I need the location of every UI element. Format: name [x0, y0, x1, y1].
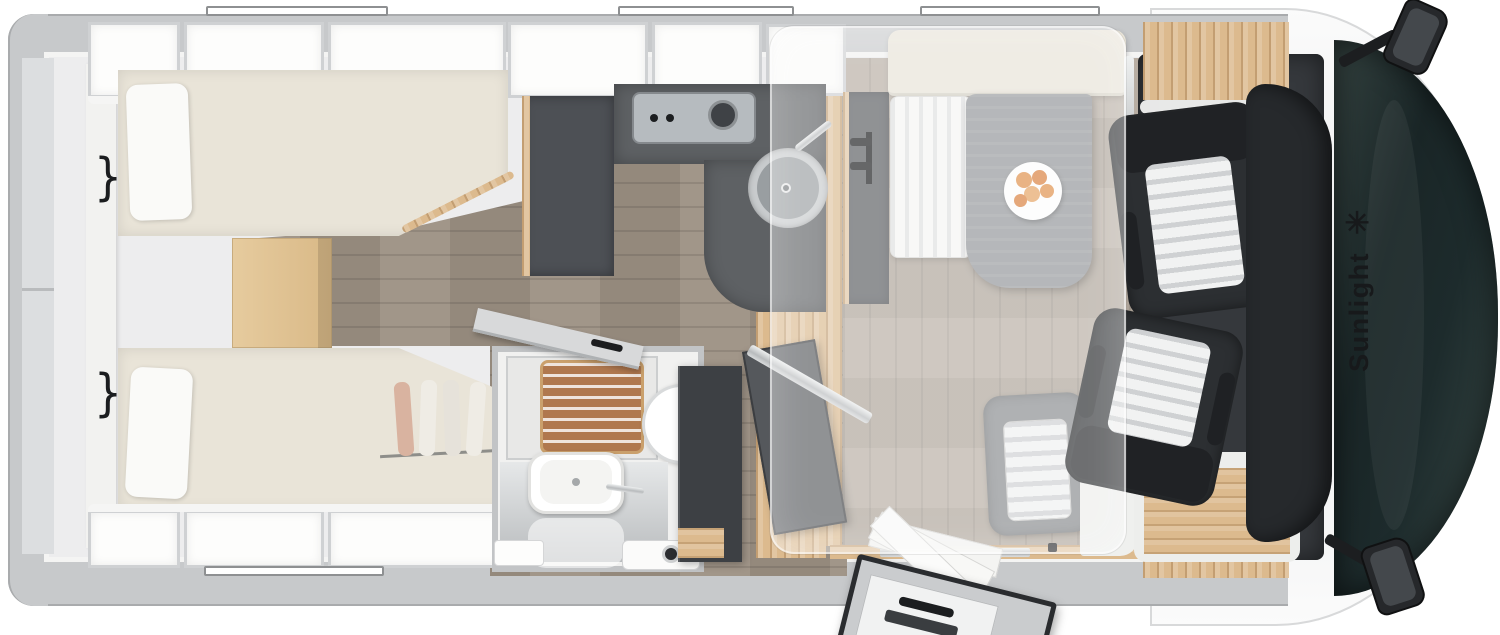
motorhome-floorplan: } }	[0, 0, 1500, 635]
reading-lamp-icon: }	[94, 153, 122, 204]
mirror-glass	[1368, 544, 1418, 608]
window-top-1	[206, 6, 388, 16]
mirror-head	[1358, 534, 1428, 618]
kitchen-tall-cabinet	[522, 96, 614, 276]
bedroom-step	[232, 238, 332, 348]
wardrobe-drawer	[678, 528, 724, 558]
pillow	[126, 83, 193, 221]
headboard-panel	[86, 64, 116, 548]
bedroom-step-edge	[318, 238, 332, 348]
hob-knob	[650, 114, 658, 122]
basin-drain	[572, 478, 580, 486]
pillow	[125, 366, 194, 499]
side-mirror-top	[1340, 0, 1450, 92]
brand-name-text: Sunlight	[1344, 252, 1374, 372]
seat-cushion	[1144, 155, 1245, 295]
hanger-garment	[443, 380, 462, 457]
window-top-3	[920, 6, 1100, 16]
window-top-2	[618, 6, 794, 16]
drop-down-bed-outline	[770, 26, 1126, 554]
overhead-locker	[88, 510, 180, 568]
reading-lamp-icon: }	[94, 369, 122, 420]
cabinet-wood-edge	[522, 96, 530, 276]
door-handle	[591, 338, 624, 352]
rear-shelf-divider	[22, 288, 54, 291]
hanger-garment	[419, 380, 438, 457]
brand-star-icon: ✳	[1342, 208, 1375, 235]
mirror-head	[1380, 0, 1452, 79]
window-bottom-1	[204, 566, 384, 576]
locker-shelf-lip	[88, 504, 506, 512]
brand-wordmark: Sunlight ✳	[1341, 135, 1385, 445]
mirror-glass	[1390, 6, 1441, 68]
overhead-locker	[184, 510, 324, 568]
hob-burner	[708, 100, 738, 130]
shower-teak-grate	[540, 360, 644, 454]
side-mirror-bottom	[1322, 506, 1432, 618]
overhead-locker	[328, 510, 506, 568]
bathroom-ledge	[494, 540, 544, 566]
rear-shelf-recess	[22, 58, 54, 554]
dashboard	[1246, 84, 1332, 542]
hob-knob	[666, 114, 674, 122]
